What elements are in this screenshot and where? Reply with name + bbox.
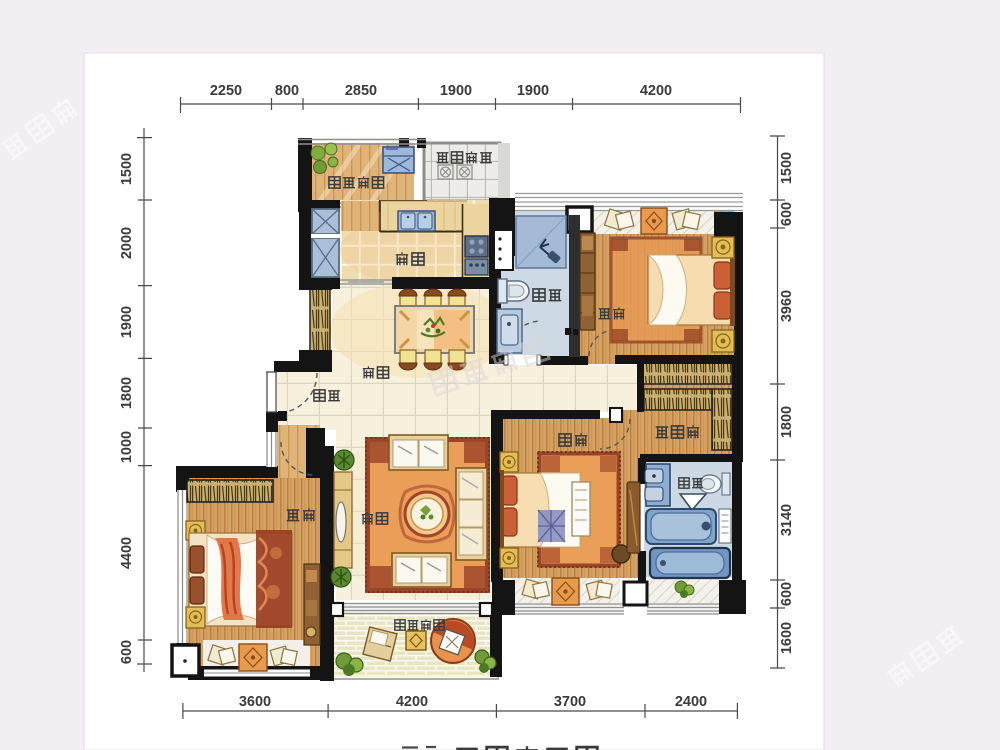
svg-text:1800: 1800	[119, 377, 135, 409]
svg-text:2850: 2850	[345, 83, 377, 99]
svg-text:4200: 4200	[640, 83, 672, 99]
svg-text:2000: 2000	[119, 227, 135, 259]
svg-text:800: 800	[275, 83, 299, 99]
svg-text:3960: 3960	[779, 290, 795, 322]
svg-text:600: 600	[119, 640, 135, 664]
svg-text:1000: 1000	[119, 431, 135, 463]
svg-text:4400: 4400	[119, 537, 135, 569]
svg-text:3140: 3140	[779, 504, 795, 536]
svg-text:600: 600	[779, 202, 795, 226]
svg-text:3700: 3700	[554, 694, 586, 710]
svg-text:3600: 3600	[239, 694, 271, 710]
svg-text:2400: 2400	[675, 694, 707, 710]
svg-text:1900: 1900	[119, 306, 135, 338]
svg-text:1900: 1900	[517, 83, 549, 99]
svg-text:1500: 1500	[779, 152, 795, 184]
svg-text:1500: 1500	[119, 153, 135, 185]
svg-text:1800: 1800	[779, 406, 795, 438]
svg-text:1900: 1900	[440, 83, 472, 99]
svg-text:600: 600	[779, 582, 795, 606]
svg-text:1600: 1600	[779, 622, 795, 654]
svg-text:4200: 4200	[396, 694, 428, 710]
svg-text:2250: 2250	[210, 83, 242, 99]
